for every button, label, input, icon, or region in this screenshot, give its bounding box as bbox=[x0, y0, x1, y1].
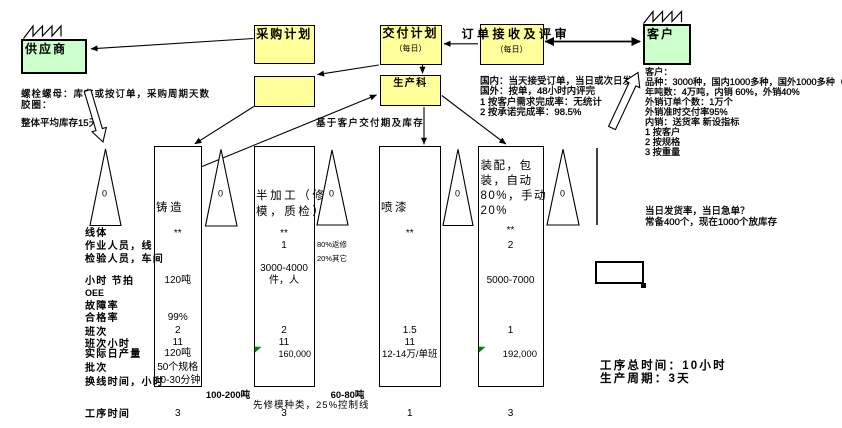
svg-text:0: 0 bbox=[560, 189, 565, 199]
svg-text:0: 0 bbox=[329, 189, 334, 199]
svg-text:0: 0 bbox=[102, 189, 107, 199]
svg-text:0: 0 bbox=[455, 189, 460, 199]
svg-text:0: 0 bbox=[218, 189, 223, 199]
